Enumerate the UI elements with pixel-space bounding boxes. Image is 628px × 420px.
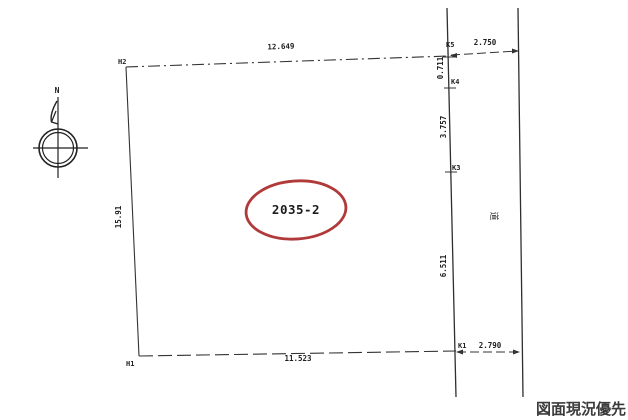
dim-arrow-bottom-road-left bbox=[456, 350, 463, 355]
dim-top: 12.649 bbox=[267, 42, 295, 52]
dim-line-top-road bbox=[451, 51, 518, 55]
north-compass-symbol: N bbox=[33, 86, 88, 178]
dim-left: 15.91 bbox=[114, 205, 123, 228]
parcel-number-label: 2035-2 bbox=[272, 202, 320, 217]
road-edge-right-line bbox=[518, 8, 523, 397]
dim-bottom-road: 2.790 bbox=[479, 341, 502, 350]
point-label-k3: K3 bbox=[452, 164, 460, 172]
point-label-h1: H1 bbox=[126, 360, 134, 368]
drawing-note: 図面現況優先 bbox=[536, 400, 626, 418]
parcel-top-edge bbox=[126, 56, 449, 67]
road-edge-left-line bbox=[447, 8, 456, 397]
point-label-k1: K1 bbox=[458, 342, 466, 350]
point-label-k4: K4 bbox=[451, 78, 459, 86]
road-kanji-label: 道 bbox=[488, 211, 500, 220]
dim-arrow-bottom-road-right bbox=[513, 350, 520, 355]
north-label: N bbox=[55, 86, 60, 95]
parcel-left-edge bbox=[126, 67, 139, 356]
dim-top-road: 2.750 bbox=[474, 38, 497, 47]
survey-drawing: N 2035-2 H2 H1 K5 K4 K3 K1 12.649 2.750 … bbox=[0, 0, 628, 420]
survey-drawing-canvas: N 2035-2 H2 H1 K5 K4 K3 K1 12.649 2.750 … bbox=[0, 0, 628, 420]
dim-k3-k1: 6.511 bbox=[439, 254, 448, 277]
dim-bottom: 11.523 bbox=[284, 354, 312, 363]
dim-k4-k3: 3.757 bbox=[439, 116, 448, 139]
point-label-h2: H2 bbox=[118, 58, 126, 66]
dim-k5-k4: 0.711 bbox=[436, 56, 445, 79]
point-label-k5: K5 bbox=[446, 41, 454, 49]
